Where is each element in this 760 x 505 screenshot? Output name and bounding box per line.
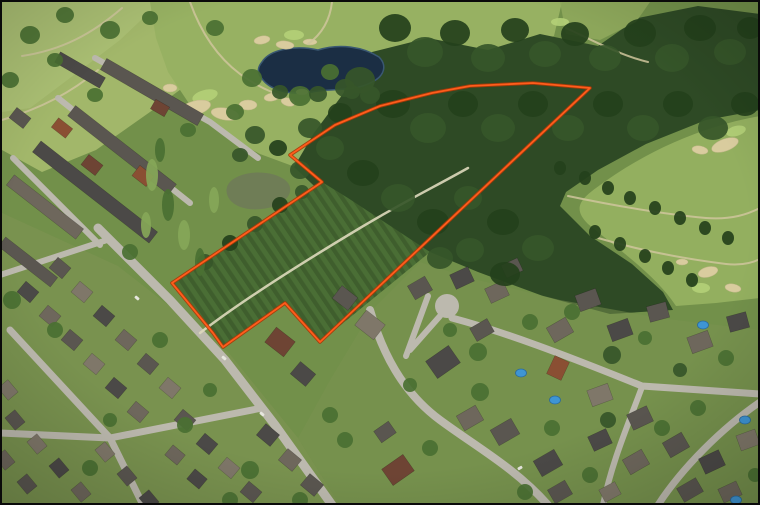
aerial-photo	[0, 0, 760, 505]
photo-frame	[0, 0, 760, 505]
vignette-overlay	[0, 0, 760, 505]
aerial-photo-svg	[0, 0, 760, 505]
